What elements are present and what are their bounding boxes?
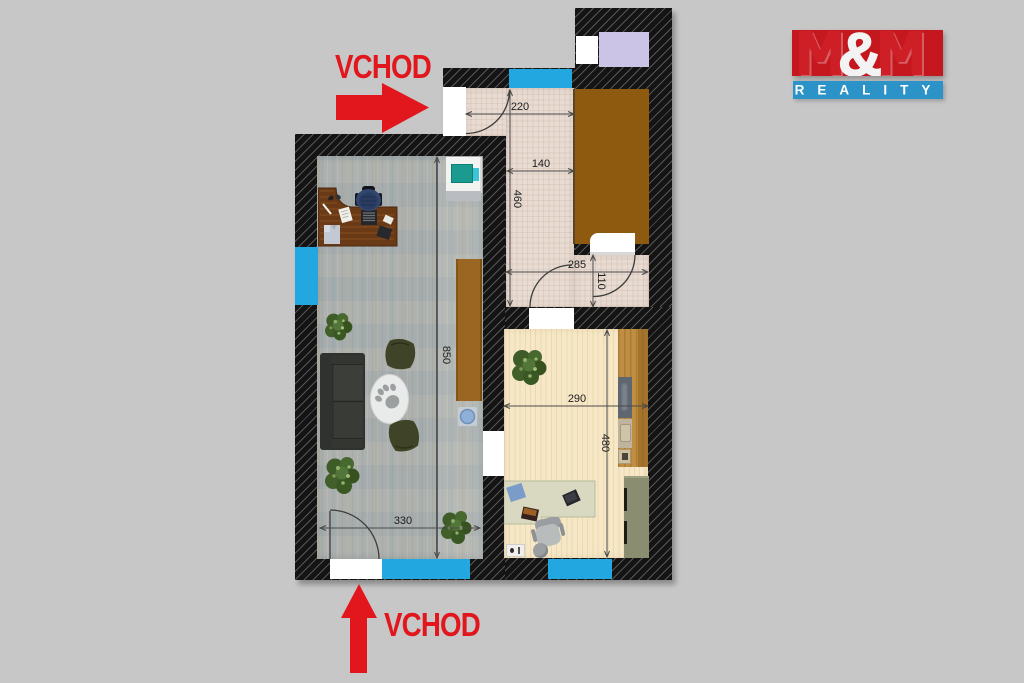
svg-text:290: 290 <box>568 393 586 405</box>
svg-text:850: 850 <box>440 346 452 364</box>
svg-text:460: 460 <box>511 190 523 208</box>
svg-text:110: 110 <box>595 272 607 290</box>
svg-text:REALITY: REALITY <box>795 83 944 98</box>
svg-text:140: 140 <box>532 158 550 170</box>
svg-text:330: 330 <box>394 515 412 527</box>
svg-text:480: 480 <box>599 434 611 452</box>
svg-text:285: 285 <box>568 259 586 271</box>
svg-text:220: 220 <box>511 101 529 113</box>
svg-text:&: & <box>838 30 882 89</box>
